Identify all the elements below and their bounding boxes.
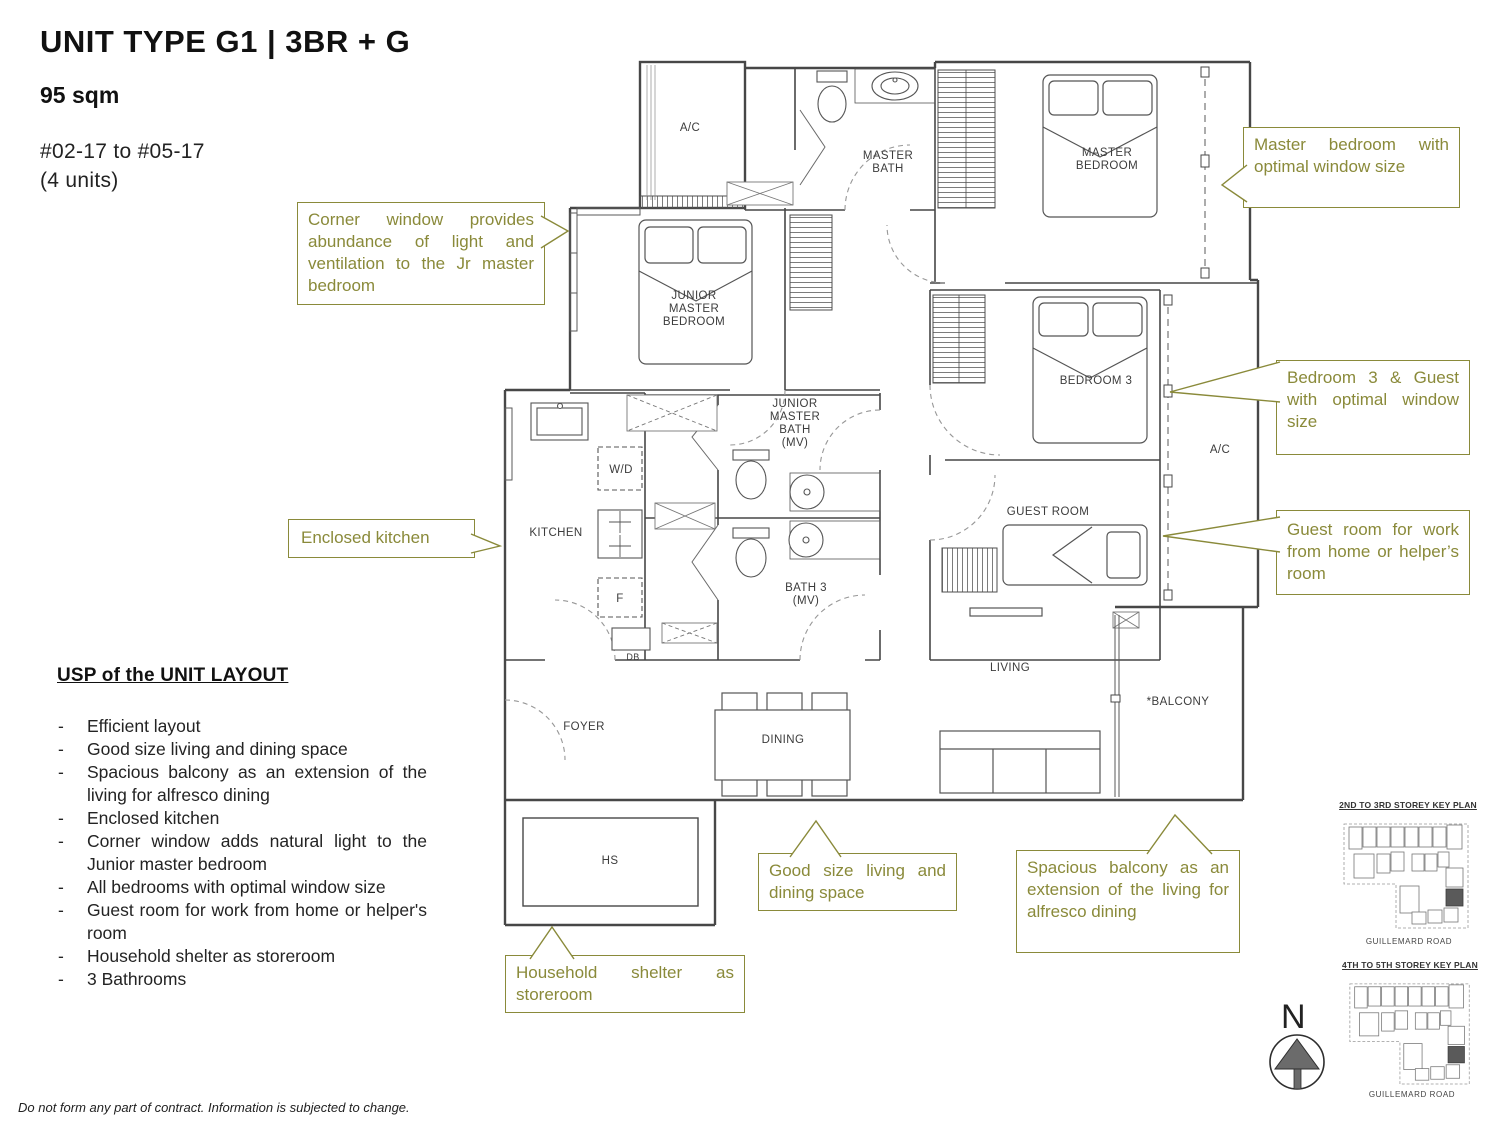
usp-item: Efficient layout <box>55 715 427 738</box>
usp-item: Guest room for work from home or helper'… <box>55 899 427 945</box>
usp-item: Household shelter as storeroom <box>55 945 427 968</box>
keyplan-1-drawing <box>1340 816 1475 934</box>
room-label-ac-right: A/C <box>1210 444 1230 457</box>
room-label-ac-top: A/C <box>680 122 700 135</box>
room-label-kitchen: KITCHEN <box>529 527 582 540</box>
page-title: UNIT TYPE G1 | 3BR + G <box>40 24 410 60</box>
room-label-master-bedroom: MASTER BEDROOM <box>1076 147 1138 173</box>
room-label-bath3: BATH 3 (MV) <box>785 582 827 608</box>
room-label-junior-master-bath: JUNIOR MASTER BATH (MV) <box>770 398 820 450</box>
usp-item: All bedrooms with optimal window size <box>55 876 427 899</box>
room-label-guest-room: GUEST ROOM <box>1007 506 1089 519</box>
callout-corner-window: Corner window provides abundance of ligh… <box>297 202 545 305</box>
unit-count: (4 units) <box>40 169 119 193</box>
room-label-bedroom3: BEDROOM 3 <box>1060 375 1133 388</box>
room-label-dining: DINING <box>762 734 805 747</box>
usp-heading: USP of the UNIT LAYOUT <box>57 665 288 687</box>
callout-enclosed-kitchen: Enclosed kitchen <box>288 519 475 558</box>
callout-bedroom3-guest: Bedroom 3 & Guest with optimal window si… <box>1276 360 1470 455</box>
usp-item: Enclosed kitchen <box>55 807 427 830</box>
keyplan-1-road: GUILLEMARD ROAD <box>1366 937 1452 946</box>
floorplan-drawing <box>500 55 1260 935</box>
unit-range: #02-17 to #05-17 <box>40 140 205 164</box>
callout-guest-room: Guest room for work from home or helper’… <box>1276 510 1470 595</box>
room-label-fridge: F <box>616 593 623 606</box>
usp-item: 3 Bathrooms <box>55 968 427 991</box>
room-label-foyer: FOYER <box>563 721 605 734</box>
room-label-master-bath: MASTER BATH <box>863 150 913 176</box>
usp-item: Spacious balcony as an extension of the … <box>55 761 427 807</box>
keyplan-2-drawing <box>1346 976 1476 1090</box>
keyplan-2-road: GUILLEMARD ROAD <box>1369 1090 1455 1099</box>
callout-master-bedroom: Master bedroom with optimal window size <box>1243 127 1460 208</box>
room-label-db: DB <box>626 652 639 662</box>
keyplan-2-title: 4TH TO 5TH STOREY KEY PLAN <box>1342 960 1478 970</box>
usp-list: Efficient layoutGood size living and din… <box>55 715 427 991</box>
callout-household-shelter: Household shelter as storeroom <box>505 955 745 1013</box>
callout-spacious-balcony: Spacious balcony as an extension of the … <box>1016 850 1240 953</box>
floorplan-slide: UNIT TYPE G1 | 3BR + G 95 sqm #02-17 to … <box>0 0 1500 1125</box>
keyplan-1-title: 2ND TO 3RD STOREY KEY PLAN <box>1339 800 1477 810</box>
disclaimer-text: Do not form any part of contract. Inform… <box>18 1100 410 1115</box>
unit-area: 95 sqm <box>40 82 119 109</box>
usp-item: Good size living and dining space <box>55 738 427 761</box>
callout-good-size-living: Good size living and dining space <box>758 853 957 911</box>
room-label-living: LIVING <box>990 662 1030 675</box>
room-label-junior-master-bedroom: JUNIOR MASTER BEDROOM <box>663 290 725 329</box>
room-label-balcony: *BALCONY <box>1147 696 1210 709</box>
north-arrow-icon <box>1264 1030 1332 1096</box>
usp-item: Corner window adds natural light to the … <box>55 830 427 876</box>
room-label-wd: W/D <box>609 464 633 477</box>
room-label-hs: HS <box>602 855 619 868</box>
